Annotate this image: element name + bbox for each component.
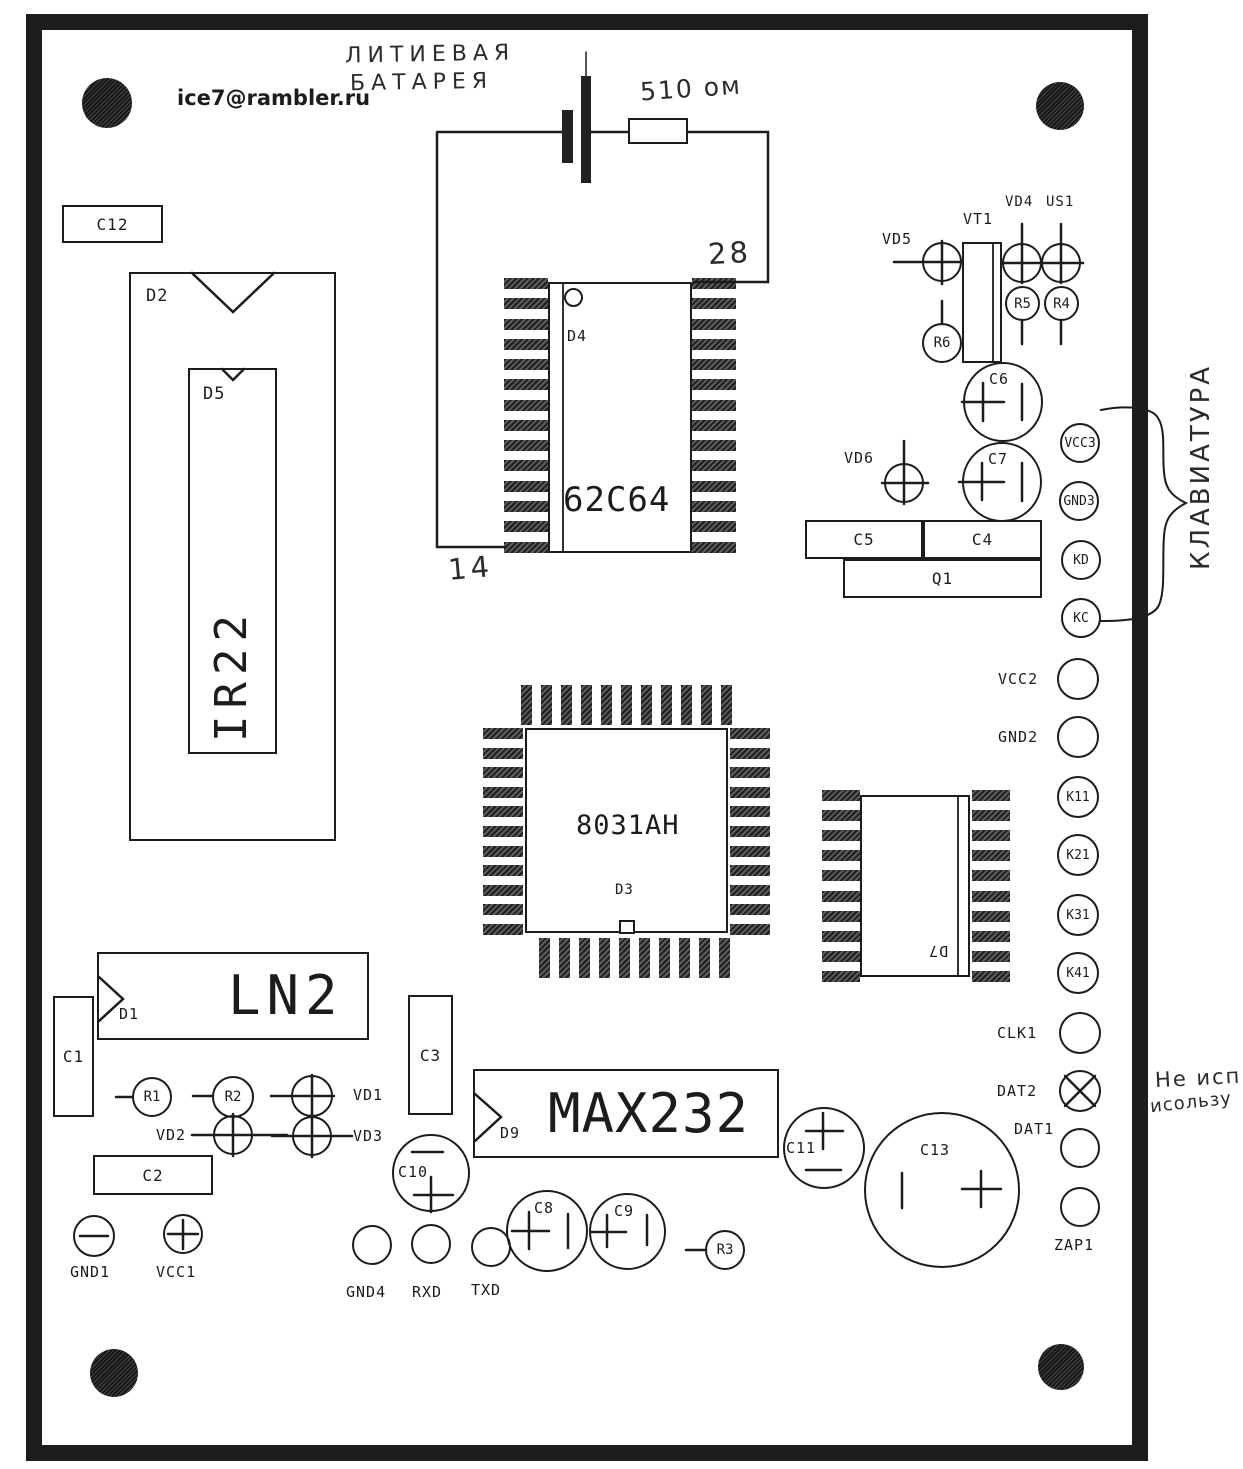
ic-solder-pad: [692, 481, 736, 492]
chip-8031AH-ref: D3: [615, 882, 634, 898]
pad-K41-label: K41: [1066, 966, 1089, 981]
annotation-lithium: ЛИТИЕВАЯ: [345, 41, 516, 69]
diode-VD6-label: VD6: [844, 449, 874, 467]
ic-solder-pad: [521, 685, 532, 725]
pad-CLK1: [1059, 1012, 1101, 1054]
annotation-keyboard: КЛАВИАТУРА: [1186, 270, 1216, 570]
ic-solder-pad: [504, 460, 548, 471]
ic-solder-pad: [619, 938, 630, 978]
ic-solder-pad: [692, 521, 736, 532]
ic-solder-pad: [692, 278, 736, 289]
ic-solder-pad: [679, 938, 690, 978]
pad-TXD-label: TXD: [471, 1281, 501, 1299]
ic-solder-pad: [504, 359, 548, 370]
capacitor-C5: C5: [805, 520, 923, 559]
capacitor-C12-label: C12: [97, 215, 129, 234]
pad-GND3: GND3: [1059, 481, 1099, 521]
ic-solder-pad: [730, 885, 770, 896]
pad-K41: K41: [1057, 952, 1099, 994]
ic-solder-pad: [581, 685, 592, 725]
pad-K11-label: K11: [1066, 790, 1089, 805]
capacitor-C2-label: C2: [142, 1166, 163, 1185]
chip-LN2-marking: LN2: [228, 964, 344, 1027]
ic-solder-pad: [621, 685, 632, 725]
capacitor-C9-label: C9: [614, 1202, 634, 1220]
ic-solder-pad: [972, 870, 1010, 881]
pad-VCC2-label: VCC2: [998, 670, 1038, 688]
pad-ZAP1-label: ZAP1: [1054, 1236, 1094, 1254]
pad-TXD: [471, 1227, 511, 1267]
capacitor-C4-label: C4: [972, 530, 993, 549]
resistor-R2: R2: [212, 1076, 254, 1118]
diode-VD5-pad: [922, 242, 962, 282]
ic-solder-pad: [692, 359, 736, 370]
ic-solder-pad: [639, 938, 650, 978]
diode-VD2-label: VD2: [156, 1126, 186, 1144]
ic-solder-pad: [483, 865, 523, 876]
pad-GND4: [352, 1225, 392, 1265]
ic-solder-pad: [692, 319, 736, 330]
ic-solder-pad: [561, 685, 572, 725]
ic-solder-pad: [483, 806, 523, 817]
capacitor-C13: [864, 1112, 1020, 1268]
chip-D7-ref: D7: [928, 942, 948, 960]
diode-VD5-label: VD5: [882, 230, 912, 248]
ic-solder-pad: [822, 891, 860, 902]
ic-solder-pad: [972, 810, 1010, 821]
capacitor-C4: C4: [923, 520, 1042, 559]
ic-solder-pad: [972, 931, 1010, 942]
mounting-hole-top-right: [1036, 82, 1084, 130]
annotation-battery: БАТАРЕЯ: [350, 69, 494, 96]
chip-MAX232-marking: MAX232: [548, 1082, 749, 1145]
pad-VCC1: [163, 1214, 203, 1254]
ic-solder-pad: [730, 728, 770, 739]
resistor-R5-label: R5: [1014, 296, 1031, 312]
capacitor-C2: C2: [93, 1155, 213, 1195]
diode-VD2-pad: [213, 1115, 253, 1155]
ic-solder-pad: [730, 826, 770, 837]
ic-solder-pad: [504, 420, 548, 431]
annotation-pin14: 14: [447, 549, 495, 587]
mounting-hole-top-left: [82, 78, 132, 128]
pad-VCC3: VCC3: [1060, 423, 1100, 463]
ic-solder-pad: [730, 748, 770, 759]
diode-VD4-label: VD4: [1005, 194, 1033, 210]
diode-VD1-label: VD1: [353, 1086, 383, 1104]
resistor-R6-label: R6: [934, 335, 951, 351]
ic-solder-pad: [599, 938, 610, 978]
crystal-Q1: Q1: [843, 559, 1042, 598]
pad-VCC1-label: VCC1: [156, 1263, 196, 1281]
capacitor-C3-label: C3: [420, 1046, 441, 1065]
ic-solder-pad: [504, 339, 548, 350]
mounting-hole-bottom-left: [90, 1349, 138, 1397]
diode-VD3-label: VD3: [353, 1127, 383, 1145]
ic-solder-pad: [719, 938, 730, 978]
stabilizer-US1-label: US1: [1046, 194, 1074, 210]
diode-VD4-pad: [1002, 243, 1042, 283]
ic-solder-pad: [822, 911, 860, 922]
ic-solder-pad: [692, 460, 736, 471]
crystal-Q1-label: Q1: [932, 569, 953, 588]
pad-K11: K11: [1057, 776, 1099, 818]
ic-solder-pad: [483, 787, 523, 798]
ic-solder-pad: [692, 440, 736, 451]
ic-solder-pad: [504, 521, 548, 532]
pad-KC: KC: [1061, 598, 1101, 638]
ic-solder-pad: [681, 685, 692, 725]
pad-K21-label: K21: [1066, 848, 1089, 863]
diode-VD3-pad: [292, 1116, 332, 1156]
ic-solder-pad: [972, 850, 1010, 861]
resistor-510ohm-body: [628, 118, 688, 144]
capacitor-C8-label: C8: [534, 1199, 554, 1217]
ic-solder-pad: [504, 319, 548, 330]
ic-solder-pad: [483, 826, 523, 837]
ic-solder-pad: [730, 924, 770, 935]
ic-solder-pad: [692, 339, 736, 350]
ic-solder-pad: [972, 830, 1010, 841]
ic-solder-pad: [541, 685, 552, 725]
ic-solder-pad: [483, 748, 523, 759]
capacitor-C7-label: C7: [988, 450, 1008, 468]
resistor-R1-label: R1: [144, 1089, 161, 1105]
ic-solder-pad: [692, 501, 736, 512]
ic-solder-pad: [730, 787, 770, 798]
ic-solder-pad: [692, 542, 736, 553]
ic-solder-pad: [539, 938, 550, 978]
diode-VD6-pad: [884, 463, 924, 503]
ic-solder-pad: [504, 481, 548, 492]
ic-solder-pad: [972, 951, 1010, 962]
chip-LN2-ref: D1: [119, 1005, 139, 1023]
chip-MAX232-ref: D9: [500, 1124, 520, 1142]
ic-solder-pad: [822, 951, 860, 962]
pad-GND2-label: GND2: [998, 728, 1038, 746]
pad-GND4-label: GND4: [346, 1283, 386, 1301]
chip-D7-body: [860, 795, 970, 977]
ic-solder-pad: [972, 971, 1010, 982]
ic-solder-pad: [730, 865, 770, 876]
ic-solder-pad: [692, 400, 736, 411]
ic-solder-pad: [822, 971, 860, 982]
chip-D5-label: D5: [203, 384, 225, 404]
pad-KC-label: KC: [1073, 611, 1089, 626]
ic-solder-pad: [504, 278, 548, 289]
transistor-VT1-body: [962, 242, 1002, 363]
ic-solder-pad: [483, 904, 523, 915]
pad-RXD: [411, 1224, 451, 1264]
resistor-R3: R3: [705, 1230, 745, 1270]
ic-solder-pad: [972, 891, 1010, 902]
pad-GND3-label: GND3: [1063, 494, 1094, 509]
pad-ZAP1: [1060, 1187, 1100, 1227]
ic-solder-pad: [730, 806, 770, 817]
chip-8031AH-marking: 8031AH: [576, 810, 680, 841]
ic-solder-pad: [504, 440, 548, 451]
ic-solder-pad: [601, 685, 612, 725]
pad-GND1: [73, 1215, 115, 1257]
mounting-hole-bottom-right: [1038, 1344, 1084, 1390]
ic-solder-pad: [699, 938, 710, 978]
diode-VD1-pad: [291, 1075, 333, 1117]
pad-DAT2: [1059, 1070, 1101, 1112]
pad-KD-label: KD: [1073, 553, 1089, 568]
socket-D2-label: D2: [146, 286, 168, 306]
resistor-R6: R6: [922, 323, 962, 363]
ic-solder-pad: [504, 379, 548, 390]
chip-62C64-ref: D4: [567, 327, 587, 345]
ic-solder-pad: [504, 298, 548, 309]
ic-solder-pad: [504, 501, 548, 512]
ic-solder-pad: [483, 924, 523, 935]
pad-K21: K21: [1057, 834, 1099, 876]
pad-K31-label: K31: [1066, 908, 1089, 923]
ic-solder-pad: [730, 846, 770, 857]
ic-solder-pad: [822, 931, 860, 942]
ic-solder-pad: [504, 400, 548, 411]
ic-solder-pad: [692, 298, 736, 309]
author-email: ice7@rambler.ru: [177, 86, 370, 110]
pad-KD: KD: [1061, 540, 1101, 580]
annotation-pin28: 28: [707, 235, 752, 271]
pad-RXD-label: RXD: [412, 1283, 442, 1301]
stabilizer-US1-pad: [1041, 243, 1081, 283]
capacitor-C12: C12: [62, 205, 163, 243]
chip-62C64-pin1-mark: [564, 288, 583, 307]
ic-solder-pad: [483, 728, 523, 739]
capacitor-C3: C3: [408, 995, 453, 1115]
capacitor-C5-label: C5: [853, 530, 874, 549]
pcb-layout-diagram: ice7@rambler.ru ЛИТИЕВАЯ БАТАРЕЯ 510 ом …: [0, 0, 1243, 1469]
ic-solder-pad: [822, 790, 860, 801]
ic-solder-pad: [701, 685, 712, 725]
pad-GND2: [1057, 716, 1099, 758]
pad-DAT2-label: DAT2: [997, 1082, 1037, 1100]
ic-solder-pad: [483, 885, 523, 896]
ic-solder-pad: [721, 685, 732, 725]
resistor-R3-label: R3: [717, 1242, 734, 1258]
capacitor-C6-label: C6: [989, 370, 1009, 388]
chip-62C64-marking: 62C64: [563, 480, 670, 520]
ic-solder-pad: [822, 830, 860, 841]
ic-solder-pad: [730, 767, 770, 778]
ic-solder-pad: [504, 542, 548, 553]
resistor-R2-label: R2: [225, 1089, 242, 1105]
pad-DAT1: [1060, 1128, 1100, 1168]
pad-VCC2: [1057, 658, 1099, 700]
capacitor-C11-label: C11: [786, 1139, 816, 1157]
transistor-VT1-label: VT1: [963, 210, 993, 228]
ic-solder-pad: [483, 767, 523, 778]
chip-IR22-marking: IR22: [206, 608, 257, 742]
pad-DAT1-label: DAT1: [1014, 1120, 1054, 1138]
capacitor-C1-label: C1: [63, 1047, 84, 1066]
resistor-R4-label: R4: [1053, 296, 1070, 312]
pad-VCC3-label: VCC3: [1064, 436, 1095, 451]
ic-solder-pad: [730, 904, 770, 915]
pad-CLK1-label: CLK1: [997, 1024, 1037, 1042]
resistor-R1: R1: [132, 1077, 172, 1117]
capacitor-C13-label: C13: [920, 1141, 950, 1159]
ic-solder-pad: [972, 911, 1010, 922]
annotation-not-used-2: исользу: [1149, 1088, 1233, 1117]
capacitor-C10-label: C10: [398, 1163, 428, 1181]
ic-solder-pad: [579, 938, 590, 978]
ic-solder-pad: [483, 846, 523, 857]
ic-solder-pad: [972, 790, 1010, 801]
ic-solder-pad: [822, 850, 860, 861]
ic-solder-pad: [559, 938, 570, 978]
capacitor-C1: C1: [53, 996, 94, 1117]
ic-solder-pad: [692, 379, 736, 390]
ic-solder-pad: [822, 810, 860, 821]
resistor-R5: R5: [1005, 286, 1040, 321]
ic-solder-pad: [641, 685, 652, 725]
ic-solder-pad: [822, 870, 860, 881]
ic-solder-pad: [659, 938, 670, 978]
pad-K31: K31: [1057, 894, 1099, 936]
pad-GND1-label: GND1: [70, 1263, 110, 1281]
resistor-R4: R4: [1044, 286, 1079, 321]
ic-solder-pad: [692, 420, 736, 431]
ic-solder-pad: [661, 685, 672, 725]
